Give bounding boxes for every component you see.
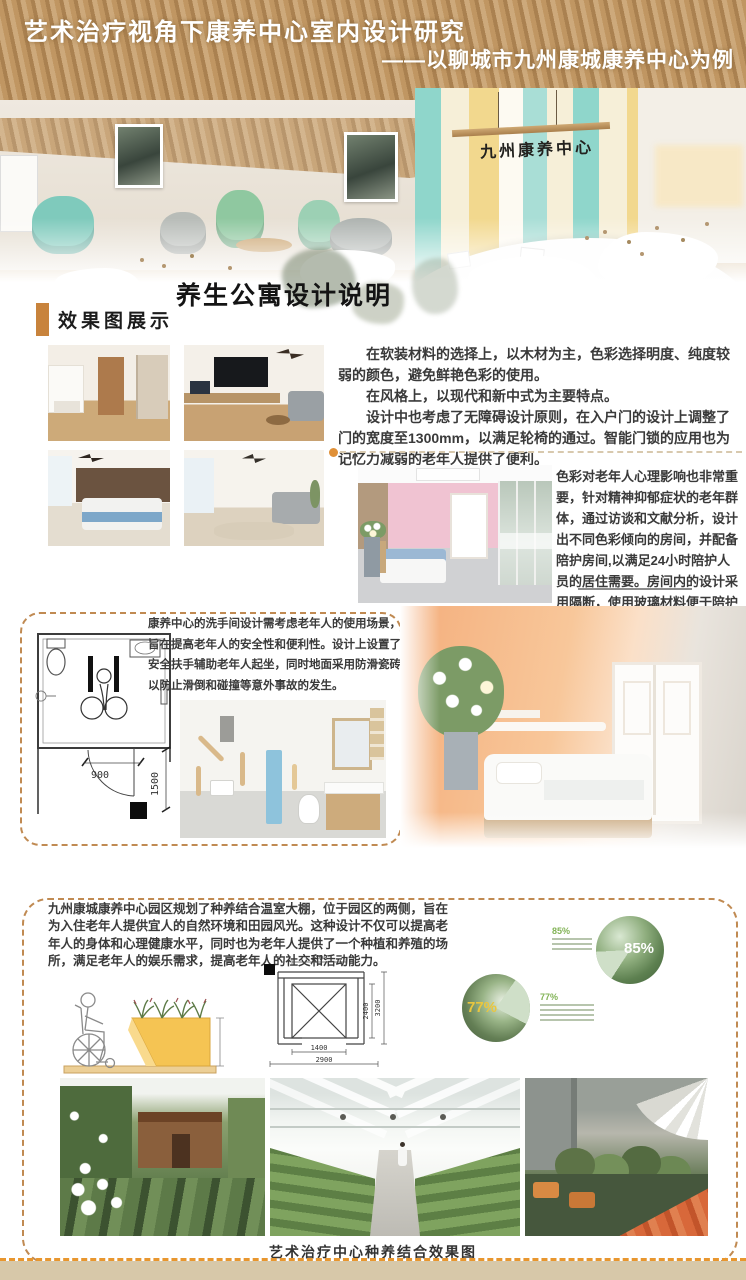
roof-beams-right: [387, 1078, 520, 1098]
pie-85-value: 85%: [624, 940, 654, 957]
page-title: 艺术治疗视角下康养中心室内设计研究: [24, 12, 466, 47]
tv-screen: [214, 357, 268, 387]
stat-85-description-greeked: [552, 938, 592, 953]
stat-77-value: 77%: [540, 992, 598, 1002]
white-flowers-foreground: [64, 1174, 134, 1226]
person-figure: [398, 1148, 407, 1166]
plant-rows-left: [270, 1148, 375, 1236]
ceiling-fan: [78, 454, 104, 462]
wood-door: [98, 357, 124, 415]
brush-stroke-decor: [412, 258, 458, 314]
plan-dim-1500: 1500: [150, 772, 161, 796]
rendering-living-tv: [184, 345, 324, 441]
ceiling-fan: [276, 349, 304, 359]
flower-vase: [364, 537, 380, 577]
flower-vase: [444, 732, 478, 790]
headboard-wall: [76, 468, 170, 502]
grab-bar: [240, 752, 245, 786]
section-heading-apartment: 养生公寓设计说明: [176, 276, 392, 312]
ink-splatter: [468, 256, 598, 300]
section-label-renderings: 效果图展示: [58, 306, 173, 333]
photo-vertical-garden: [60, 1078, 265, 1236]
planter-boxes: [533, 1182, 559, 1198]
poster-page: 九州康养中心 艺术治疗视角下康养中心室内设计研究 ——以聊城市九州康城康养中心为…: [0, 0, 746, 1280]
frame-dim-outer-width: 2900: [316, 1056, 333, 1064]
dash-connector-dot: [329, 448, 338, 457]
plant: [310, 480, 320, 508]
glass-partition: [498, 481, 552, 585]
grab-bar: [196, 766, 201, 796]
ceiling-light-panel: [416, 468, 480, 481]
blue-curtain: [266, 750, 282, 824]
plant-rows-right: [415, 1148, 520, 1236]
photo-greenhouse-interior: [270, 1078, 520, 1236]
plan-dim-900: 900: [91, 770, 109, 781]
shower-seat: [210, 780, 234, 796]
window-light: [48, 456, 72, 506]
stat-85-label: 85%: [552, 926, 594, 953]
frame-dim-inner-width: 1400: [311, 1044, 328, 1052]
wheelchair-planter-diagram: [58, 978, 230, 1078]
wall-equipment-panel: [496, 710, 540, 718]
toilet: [298, 794, 320, 824]
paragraph-bathroom: 康养中心的洗手间设计需考虑老年人的使用场景，旨在提高老年人的安全性和便利性。设计…: [148, 614, 406, 697]
wall-art: [344, 132, 398, 202]
ceiling-fan: [242, 454, 266, 463]
paragraph-accessibility: 设计中也考虑了无障碍设计原则，在入户门的设计上调整了门的宽度至1300mm，以满…: [338, 407, 734, 470]
roof-beams-left: [270, 1078, 405, 1098]
frame-dim-inner-height: 2400: [362, 1003, 370, 1020]
wardrobe: [136, 355, 168, 419]
stat-77-label: 77%: [540, 992, 598, 1024]
ink-speckles: [140, 258, 144, 262]
cabin-door: [172, 1134, 190, 1168]
laptop: [190, 381, 210, 394]
sofa: [288, 391, 324, 421]
dashed-separator: [340, 451, 742, 453]
paragraph-style: 在风格上，以现代和新中式为主要特点。: [338, 386, 734, 407]
mirror: [332, 718, 372, 770]
tv-console: [184, 393, 280, 403]
frame-dim-outer-height: 3200: [374, 1000, 382, 1017]
decor-underline: [578, 588, 692, 590]
orange-accent-bar: [36, 303, 49, 336]
page-subtitle: ——以聊城市九州康城康养中心为例: [382, 44, 734, 74]
paragraph-soft-materials: 在软装材料的选择上，以木材为主，色彩选择明度、纯度较弱的颜色，避免鲜艳色彩的使用…: [338, 344, 734, 386]
pillow: [496, 762, 542, 784]
photo-courtyard-garden: [525, 1078, 708, 1236]
pie-chart-85: 85%: [596, 916, 664, 984]
white-fade-bottom: [400, 812, 746, 848]
ink-splatter: [55, 268, 140, 296]
white-parasol: [629, 1078, 708, 1140]
frame-dim-top: 1400: [311, 954, 328, 962]
door-panel: [623, 681, 651, 735]
rendering-bedroom: [48, 450, 170, 546]
counter: [54, 401, 80, 413]
blue-throw: [82, 512, 162, 522]
footer-beige-strip: [0, 1261, 746, 1280]
hanging-lamps: [340, 1114, 346, 1120]
planter-frame-diagram: 1400 2400 3200 1400 2900: [256, 954, 392, 1070]
shower-shelf: [220, 716, 234, 742]
pie-77-value: 77%: [467, 999, 497, 1016]
center-path: [370, 1150, 420, 1236]
rug: [214, 522, 294, 540]
frosted-band: [500, 533, 552, 549]
rendering-pink-ward: [358, 465, 552, 603]
window-light: [184, 458, 214, 513]
rendering-accessible-bathroom: [180, 700, 386, 838]
sink: [324, 782, 384, 794]
wood-cabin: [138, 1112, 222, 1168]
person-head: [400, 1142, 405, 1147]
door-panel: [663, 681, 691, 735]
hospital-bed: [380, 549, 446, 583]
wall-shelf: [370, 708, 384, 760]
wall-light-glow: [655, 145, 743, 207]
truss-lines: [270, 1108, 520, 1110]
rendering-kitchen-hallway: [48, 345, 170, 441]
round-table: [266, 415, 290, 425]
rendering-living-sofa: [184, 450, 324, 546]
grab-bar: [292, 764, 297, 790]
rendering-orange-ward: [400, 606, 746, 848]
wall-art: [115, 124, 163, 188]
ink-speckles: [585, 236, 589, 240]
stat-85-value: 85%: [552, 926, 594, 936]
blanket: [544, 780, 644, 800]
stat-77-description-greeked: [540, 1004, 594, 1024]
white-door: [450, 493, 488, 559]
door-split: [653, 665, 656, 815]
pie-chart-77: 77%: [462, 974, 530, 1042]
foliage: [228, 1098, 265, 1178]
